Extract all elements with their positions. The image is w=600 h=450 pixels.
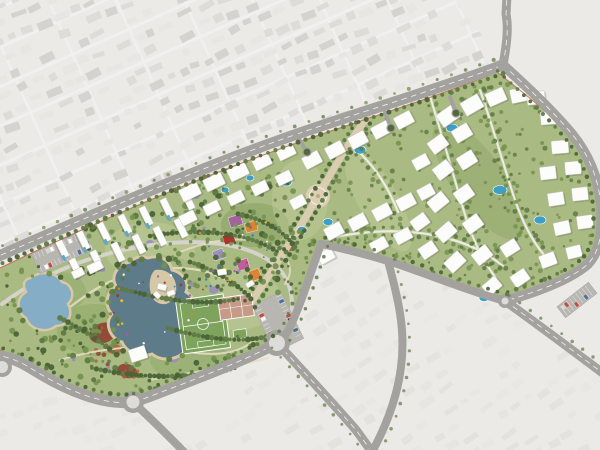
- tree: [165, 379, 169, 383]
- tree: [382, 250, 386, 254]
- tree: [440, 93, 444, 97]
- dot: [183, 302, 185, 304]
- dot: [202, 289, 204, 291]
- tree: [201, 334, 205, 338]
- tree: [295, 292, 298, 295]
- tree: [87, 234, 92, 239]
- tree: [142, 292, 147, 297]
- tree: [515, 184, 519, 188]
- tree: [76, 314, 81, 319]
- tree: [58, 338, 63, 343]
- tree: [524, 215, 528, 219]
- tree: [67, 339, 71, 343]
- dot: [242, 234, 244, 236]
- tree: [569, 178, 573, 182]
- tree: [332, 211, 336, 215]
- tree: [211, 230, 216, 235]
- tree: [213, 254, 219, 260]
- tree: [538, 268, 543, 273]
- tree: [277, 330, 281, 334]
- tree: [96, 219, 101, 224]
- tree: [356, 236, 359, 239]
- tree: [191, 179, 196, 184]
- tree: [523, 285, 527, 289]
- tree: [265, 288, 269, 292]
- tree: [258, 218, 262, 222]
- tree: [518, 172, 520, 174]
- tree: [395, 415, 398, 418]
- tree: [311, 286, 315, 290]
- tree: [111, 340, 117, 346]
- building-roof: [576, 214, 594, 229]
- purple-tree: [72, 358, 76, 362]
- tree: [529, 242, 533, 246]
- tree: [189, 252, 195, 258]
- tree: [130, 215, 136, 221]
- tree: [36, 347, 39, 350]
- dot: [157, 275, 159, 277]
- tree: [506, 209, 510, 213]
- tree: [127, 257, 132, 262]
- tree: [495, 255, 499, 259]
- dot: [199, 232, 202, 235]
- tree: [392, 133, 396, 137]
- tree: [11, 349, 15, 353]
- tree: [517, 233, 522, 238]
- tree: [214, 171, 218, 175]
- tree: [509, 173, 512, 176]
- tree: [297, 230, 301, 234]
- tree: [582, 167, 586, 171]
- tree: [222, 187, 225, 190]
- tree: [121, 371, 126, 376]
- tree: [515, 133, 518, 136]
- tree: [310, 193, 314, 197]
- tree: [496, 290, 500, 294]
- tree: [493, 243, 498, 248]
- tree: [494, 269, 498, 273]
- tree: [536, 238, 540, 242]
- tree: [299, 210, 303, 214]
- tree: [36, 333, 39, 336]
- tree: [315, 394, 318, 397]
- tree: [399, 134, 402, 137]
- tree: [499, 82, 503, 86]
- tree: [491, 141, 494, 144]
- building-roof: [217, 268, 227, 275]
- tree: [16, 307, 22, 313]
- tree: [177, 298, 182, 303]
- dot: [120, 299, 123, 302]
- tree: [292, 236, 296, 240]
- tree: [581, 348, 584, 351]
- tree: [11, 298, 16, 303]
- tree: [207, 364, 210, 367]
- tree: [495, 129, 500, 134]
- tree: [497, 266, 501, 270]
- tree: [308, 297, 311, 300]
- tree: [90, 358, 94, 362]
- tree: [259, 335, 264, 340]
- tree: [399, 147, 402, 150]
- road-corner: [498, 60, 509, 71]
- tree: [372, 173, 375, 176]
- tree: [525, 234, 529, 238]
- tree: [272, 276, 276, 280]
- tree: [306, 261, 309, 264]
- tree: [499, 139, 502, 142]
- tree: [209, 335, 215, 341]
- tree: [400, 188, 403, 191]
- tree: [154, 244, 159, 249]
- tree: [464, 274, 467, 277]
- tree: [363, 246, 366, 249]
- tree: [251, 140, 254, 143]
- tree: [334, 174, 338, 178]
- tree: [590, 200, 594, 204]
- tree: [489, 193, 493, 197]
- tree: [477, 284, 481, 288]
- tree: [539, 317, 542, 320]
- tree: [520, 226, 524, 230]
- tree: [83, 385, 87, 389]
- tree: [507, 294, 510, 297]
- tree: [1, 244, 4, 247]
- tree: [26, 347, 30, 351]
- tree: [256, 342, 260, 346]
- tree: [483, 100, 486, 103]
- tree: [532, 231, 535, 234]
- dot: [250, 226, 252, 228]
- tree: [290, 188, 296, 194]
- tree: [184, 274, 189, 279]
- tree: [383, 176, 387, 180]
- tree: [293, 125, 297, 129]
- tree: [296, 249, 300, 253]
- tree: [354, 153, 357, 156]
- garden-dot: [102, 352, 107, 357]
- tree: [283, 258, 288, 263]
- tree: [349, 433, 352, 436]
- tree: [203, 199, 207, 203]
- tree: [139, 256, 145, 262]
- building: [571, 187, 590, 203]
- tree: [223, 336, 229, 342]
- tree: [9, 340, 12, 343]
- tree: [364, 117, 369, 122]
- tree: [260, 293, 265, 298]
- tree: [518, 301, 521, 304]
- tree: [405, 376, 409, 380]
- dot: [126, 333, 129, 336]
- tree: [215, 195, 218, 198]
- tree: [61, 363, 64, 366]
- tree: [17, 353, 20, 356]
- tree: [238, 246, 241, 249]
- tree: [282, 322, 285, 325]
- tree: [28, 255, 31, 258]
- tree: [287, 252, 292, 257]
- tree: [341, 162, 345, 166]
- tree: [486, 77, 490, 81]
- tree: [422, 83, 425, 86]
- tree: [108, 391, 113, 396]
- tree: [348, 180, 353, 185]
- tree: [302, 229, 306, 233]
- purple-tree: [202, 227, 205, 230]
- tree: [124, 245, 128, 249]
- tree: [265, 135, 268, 138]
- tree: [501, 71, 506, 76]
- tree: [364, 234, 368, 238]
- tree: [274, 227, 278, 231]
- tree: [138, 291, 143, 296]
- tree: [222, 284, 225, 287]
- tree: [108, 370, 112, 374]
- tree: [438, 187, 441, 190]
- tree: [282, 209, 286, 213]
- tree: [166, 326, 171, 331]
- tree: [190, 370, 194, 374]
- tree: [508, 151, 511, 154]
- tree: [228, 232, 234, 238]
- tree: [200, 264, 205, 269]
- tree: [384, 439, 387, 442]
- tree: [385, 195, 390, 200]
- tree: [125, 371, 130, 376]
- tree: [65, 319, 71, 325]
- tree: [232, 338, 236, 342]
- building: [551, 140, 571, 156]
- tree: [12, 303, 16, 307]
- tree: [66, 232, 71, 237]
- tree: [378, 168, 382, 172]
- master-plan-stage: [0, 0, 600, 450]
- dot: [234, 270, 236, 272]
- tree: [319, 265, 323, 269]
- tree: [283, 278, 286, 281]
- tree: [407, 323, 410, 326]
- tree: [503, 266, 508, 271]
- tree: [491, 261, 495, 265]
- tree: [275, 213, 279, 217]
- tree: [458, 208, 461, 211]
- tree: [68, 379, 71, 382]
- tree: [478, 80, 482, 84]
- tree: [391, 225, 395, 229]
- tree: [282, 195, 287, 200]
- tree: [70, 322, 74, 326]
- entry-node: [303, 148, 311, 156]
- tree: [132, 392, 136, 396]
- tree: [120, 348, 126, 354]
- tree: [28, 357, 33, 362]
- tree: [399, 402, 403, 406]
- building-roof: [547, 191, 565, 206]
- tree: [379, 96, 383, 100]
- tree: [92, 324, 98, 330]
- tree: [225, 277, 229, 281]
- dot: [209, 285, 211, 287]
- tree: [420, 263, 424, 267]
- tree: [479, 119, 483, 123]
- tree: [509, 81, 512, 84]
- tree: [408, 336, 411, 339]
- tree: [585, 175, 590, 180]
- tree: [364, 101, 368, 105]
- tree: [279, 130, 282, 133]
- tree: [504, 156, 507, 159]
- tree: [178, 263, 182, 267]
- tree: [233, 262, 237, 266]
- tree: [547, 118, 551, 122]
- tree: [246, 222, 251, 227]
- tree: [59, 235, 64, 240]
- tree: [223, 151, 226, 154]
- tree: [427, 228, 431, 232]
- tree: [307, 120, 310, 123]
- tree: [207, 174, 211, 178]
- dot: [227, 281, 229, 283]
- tree: [393, 257, 397, 261]
- tree: [155, 195, 159, 199]
- tree: [199, 220, 204, 225]
- tree: [521, 207, 524, 210]
- tree: [192, 332, 197, 337]
- tree: [285, 234, 290, 239]
- tree: [248, 210, 252, 214]
- tree: [202, 187, 205, 190]
- dot: [265, 221, 267, 223]
- tree: [417, 255, 420, 258]
- tree: [424, 130, 429, 135]
- tree: [570, 340, 574, 344]
- tree: [1, 261, 5, 265]
- tree: [44, 366, 49, 371]
- tree: [287, 265, 290, 268]
- tree: [241, 338, 245, 342]
- tree: [368, 122, 372, 126]
- tree: [347, 188, 351, 192]
- tree: [295, 241, 299, 245]
- tree: [525, 147, 529, 151]
- tree: [407, 87, 411, 91]
- tree: [405, 254, 408, 257]
- tree: [60, 345, 66, 351]
- entry-node: [387, 124, 395, 132]
- tree: [229, 242, 233, 246]
- tree: [330, 180, 335, 185]
- tree: [560, 270, 563, 273]
- tree: [482, 266, 486, 270]
- path: [503, 0, 507, 65]
- tree: [507, 178, 510, 181]
- plaza-center: [316, 194, 320, 198]
- tree: [577, 180, 581, 184]
- tree: [402, 389, 405, 392]
- tree: [345, 156, 350, 161]
- tree: [221, 168, 225, 172]
- tree: [233, 241, 236, 244]
- tree: [498, 198, 500, 200]
- tree: [555, 272, 559, 276]
- tree: [139, 389, 143, 393]
- tree: [460, 216, 464, 220]
- tree: [353, 242, 357, 246]
- tree: [496, 158, 500, 162]
- tree: [125, 190, 129, 194]
- dot: [218, 264, 220, 266]
- tree: [306, 223, 310, 227]
- tree: [30, 248, 34, 252]
- tree: [504, 179, 507, 182]
- tree: [295, 328, 298, 331]
- tree: [114, 352, 120, 358]
- tree: [482, 86, 487, 91]
- tree: [139, 184, 143, 188]
- tree: [139, 373, 144, 378]
- tree: [280, 265, 284, 269]
- tree: [280, 258, 283, 261]
- tree: [239, 242, 242, 245]
- tree: [179, 329, 184, 334]
- tree: [186, 299, 191, 304]
- tree: [357, 120, 361, 124]
- tree: [133, 204, 137, 208]
- tree: [381, 188, 384, 191]
- tree: [450, 73, 453, 76]
- tree: [126, 268, 130, 272]
- tree: [434, 101, 438, 105]
- tree: [315, 276, 319, 280]
- dot: [121, 323, 123, 325]
- tree: [231, 297, 236, 302]
- tree: [253, 216, 258, 221]
- tree: [133, 225, 137, 229]
- tree: [342, 138, 346, 142]
- tree: [75, 382, 79, 386]
- dot: [134, 287, 136, 289]
- tree: [111, 327, 116, 332]
- tree: [393, 192, 396, 195]
- tree: [516, 218, 521, 223]
- tree: [503, 260, 507, 264]
- tree: [89, 318, 94, 323]
- tree: [106, 300, 111, 305]
- tree: [181, 373, 185, 377]
- tree: [220, 232, 224, 236]
- tree: [132, 229, 136, 233]
- tree: [267, 174, 272, 179]
- building-roof: [539, 166, 556, 181]
- tree: [245, 236, 251, 242]
- tree: [347, 237, 350, 240]
- tree: [548, 276, 552, 280]
- tree: [592, 225, 595, 228]
- tree: [400, 226, 403, 229]
- tree: [89, 334, 93, 338]
- tree: [277, 229, 282, 234]
- tree: [73, 344, 76, 347]
- tree: [393, 92, 396, 95]
- tree: [36, 361, 41, 366]
- tree: [219, 288, 223, 292]
- tree: [499, 110, 503, 114]
- tree: [565, 138, 569, 142]
- tree: [570, 145, 574, 149]
- tree: [196, 333, 200, 337]
- tree: [60, 375, 64, 379]
